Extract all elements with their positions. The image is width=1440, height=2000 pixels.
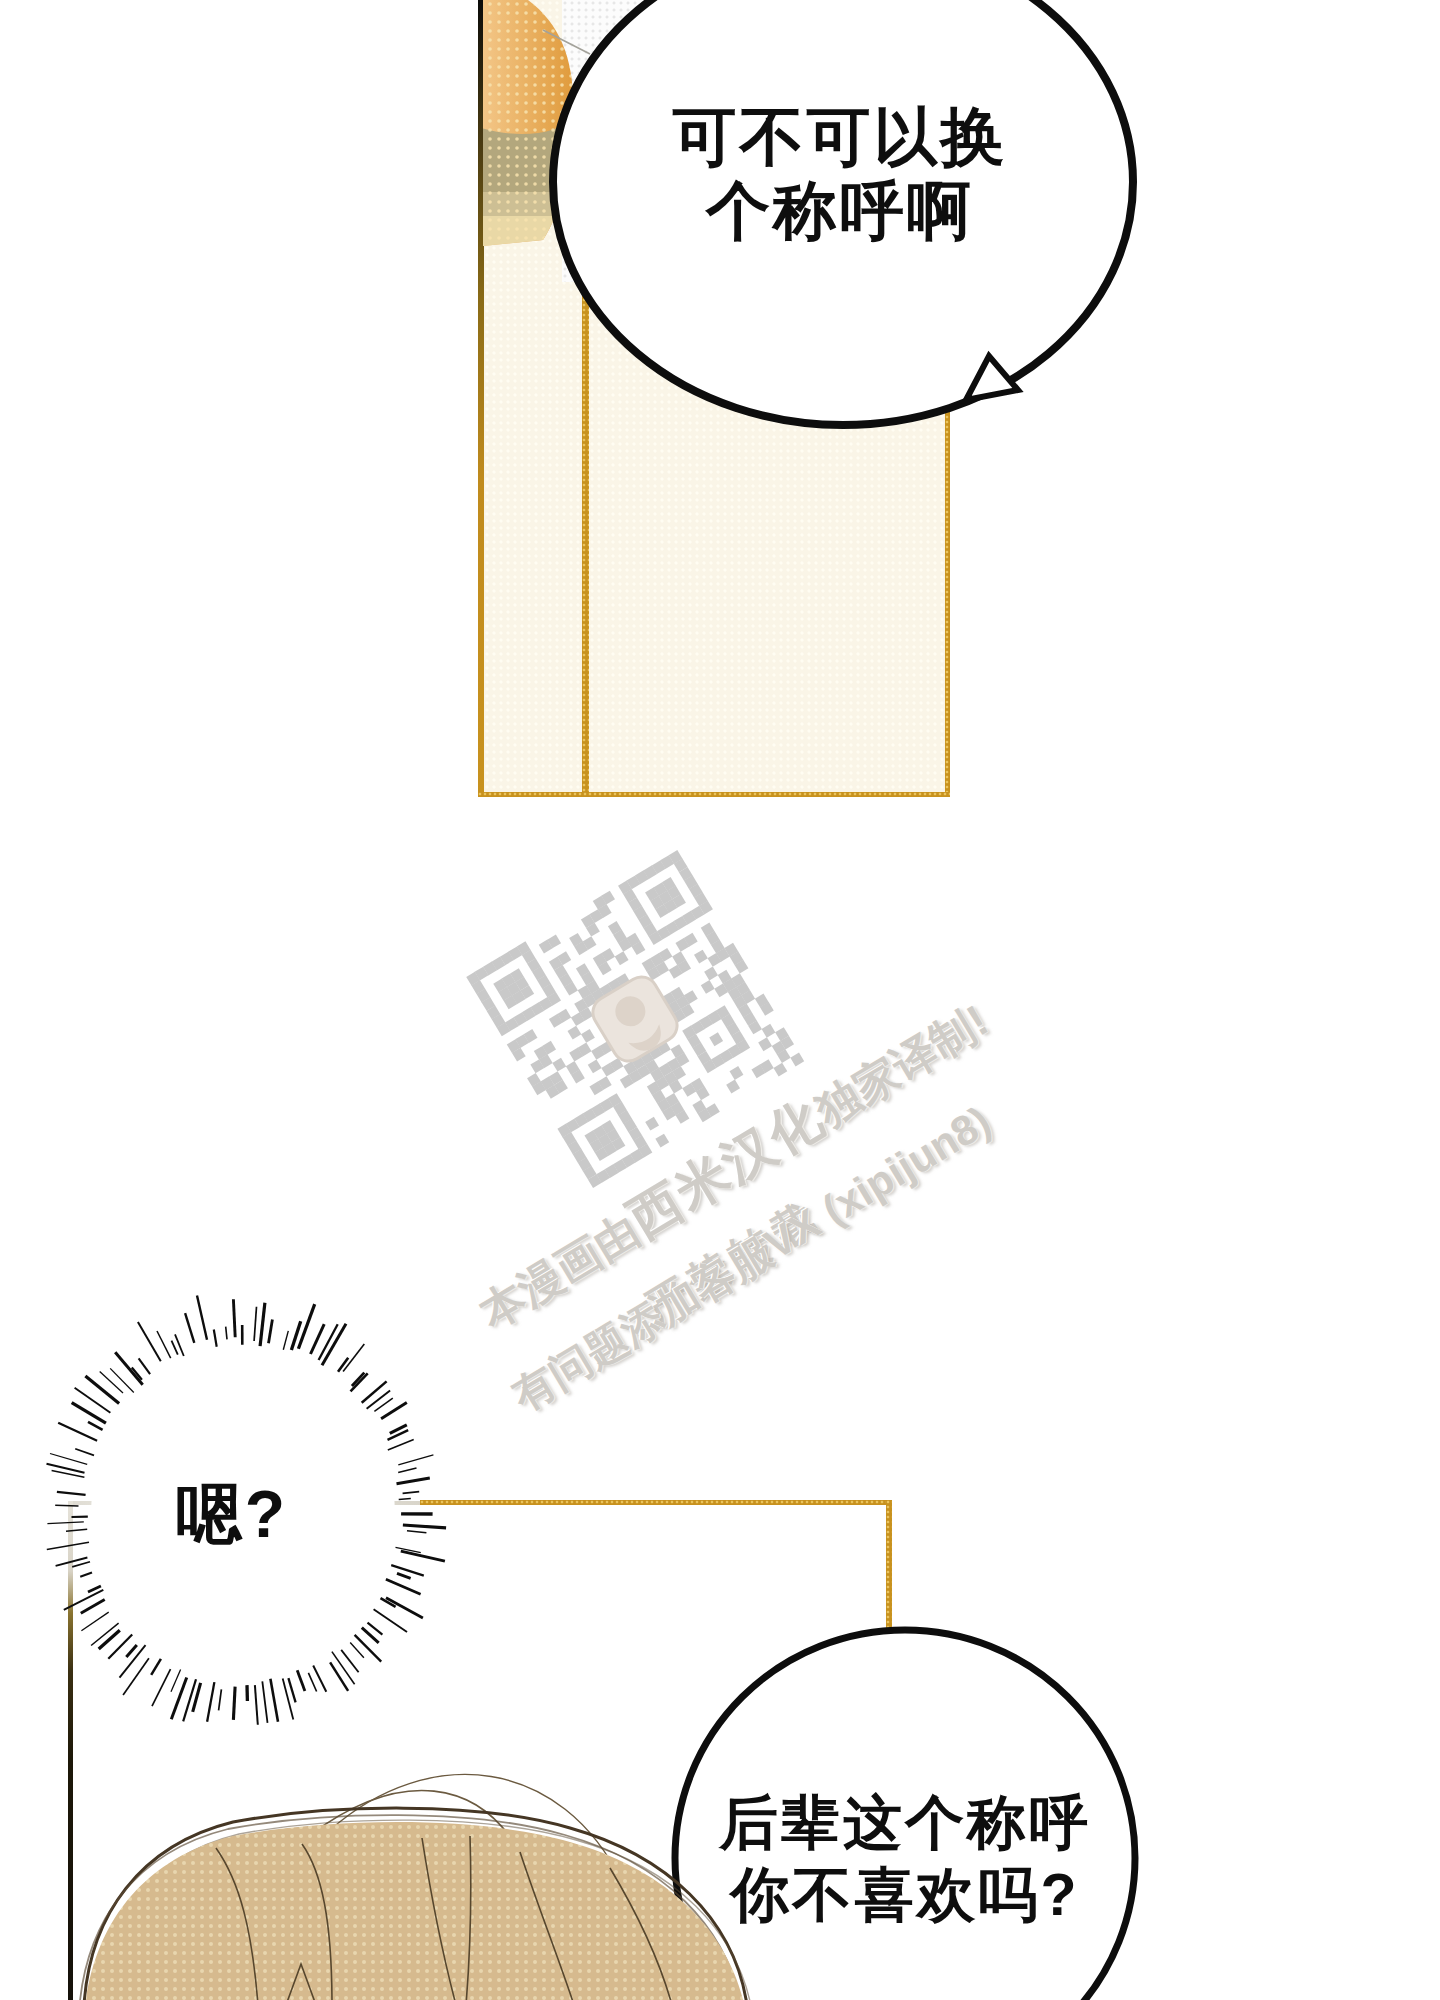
speech-bubble-top-line1: 可不可以换: [600, 102, 1080, 174]
character-hair: [55, 1688, 765, 2000]
speech-bubble-top-line2: 个称呼啊: [600, 176, 1080, 248]
top-panel-border-bottom: [478, 792, 950, 797]
comic-page: 可不可以换 个称呼啊 本漫画由西米汉化独家译制! 严禁转载 有问题添加客服VX …: [0, 0, 1440, 2000]
burst-bubble-text: 嗯?: [132, 1478, 332, 1552]
bottom-panel-border-right: [886, 1500, 892, 1633]
bottom-panel-border-top-gold: [420, 1500, 892, 1505]
